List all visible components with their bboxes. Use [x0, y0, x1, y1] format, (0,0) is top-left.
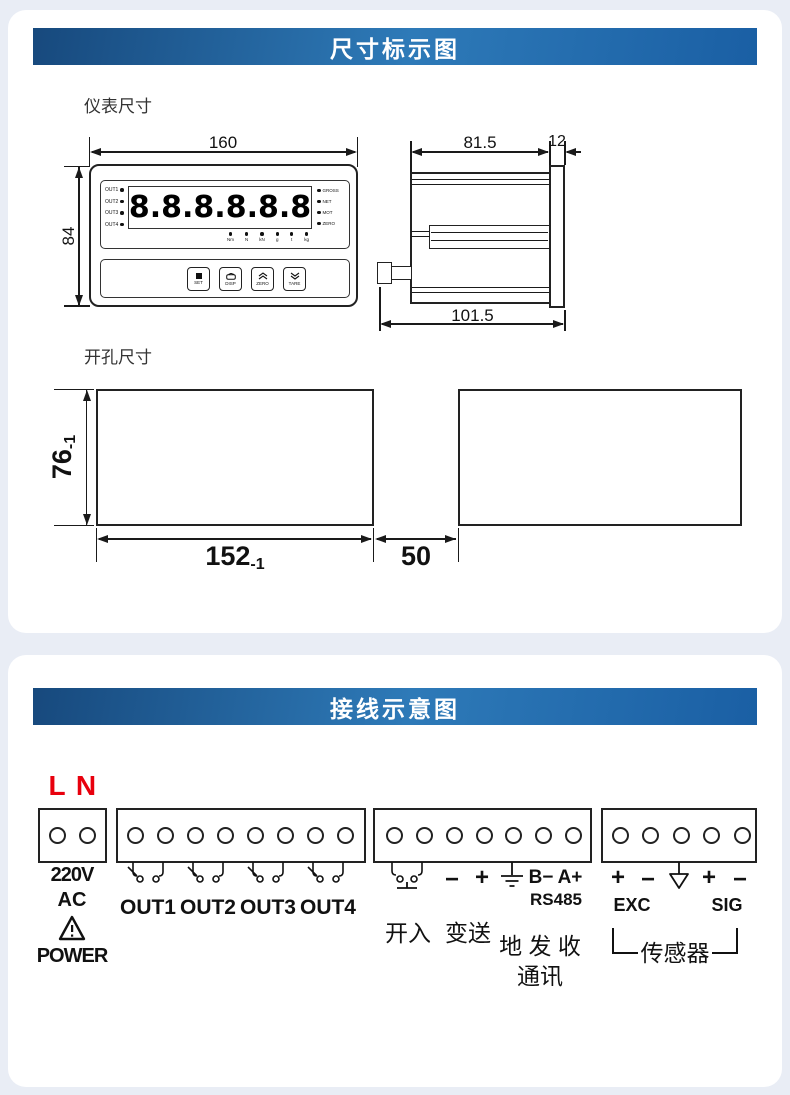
terminal-hole — [505, 827, 522, 844]
cutout-gap-dim: 50 — [394, 541, 438, 572]
bracket-left — [612, 928, 638, 954]
out1-label: OUT1 — [118, 896, 178, 920]
comm-label: 通讯 — [508, 957, 572, 991]
dim-value: 81.5 — [445, 133, 515, 153]
voltage-label: 220V — [34, 864, 110, 887]
mounting-clamp — [429, 225, 550, 249]
terminal-hole — [612, 827, 629, 844]
rs485-label: RS485 — [521, 890, 591, 910]
dim-value: 152 — [205, 541, 250, 571]
bracket-right — [712, 928, 738, 954]
terminal-hole — [734, 827, 751, 844]
cutout-rect-right — [458, 389, 742, 526]
terminal-hole — [673, 827, 690, 844]
ac-label: AC — [34, 889, 110, 912]
relay-contact-icon — [244, 862, 292, 894]
unit-g: g — [276, 237, 279, 242]
terminal-hole — [703, 827, 720, 844]
led-dot — [245, 232, 249, 236]
out3-label: OUT3 — [238, 896, 298, 920]
disp-button-label: DISP — [225, 281, 236, 286]
unit-kn: kN — [259, 237, 265, 242]
sig-minus: − — [725, 866, 755, 894]
disp-button: DISP — [219, 267, 242, 291]
terminal-hole — [79, 827, 96, 844]
line-n-label: N — [72, 770, 100, 802]
tare-button-label: TARE — [289, 281, 301, 286]
arrowhead — [361, 535, 372, 543]
terminal-hole — [127, 827, 144, 844]
arrowhead — [97, 535, 108, 543]
out2-label: OUT2 — [105, 199, 118, 205]
rear-connector-neck — [391, 266, 412, 280]
out1-label: OUT1 — [105, 187, 118, 193]
led-dot — [290, 232, 294, 236]
out-indicator-column: OUT1 OUT2 OUT3 OUT4 — [105, 187, 124, 228]
ext-line — [410, 141, 412, 172]
line — [431, 240, 548, 241]
chevron-double-down-icon — [290, 272, 300, 280]
terminal-hole — [535, 827, 552, 844]
rs485-a-label: A+ — [550, 867, 590, 889]
gnd-tx-rx-label: 地 发 收 — [494, 927, 586, 961]
io-terminal-block — [373, 808, 592, 863]
dim-tolerance: -1 — [250, 556, 264, 573]
warning-icon — [58, 915, 86, 942]
relay-contact-icon — [124, 862, 172, 894]
unit-kg: kg — [304, 237, 309, 242]
transmit-plus: + — [467, 864, 497, 892]
relay-contact-icon — [304, 862, 352, 894]
out4-label: OUT4 — [298, 896, 358, 920]
dim-value: 160 — [193, 133, 253, 153]
key-row: SET DISP ZERO TARE — [187, 267, 306, 291]
key-panel: SET DISP ZERO TARE — [100, 259, 350, 298]
sensor-terminal-block — [601, 808, 757, 863]
arrowhead — [75, 295, 83, 306]
switch-input-icon — [378, 862, 436, 900]
arrowhead — [90, 148, 101, 156]
gross-label: GROSS — [323, 188, 339, 193]
dim-line — [86, 390, 88, 525]
terminal-hole — [157, 827, 174, 844]
cutout-size-label: 开孔尺寸 — [84, 343, 152, 368]
dim-value: 12 — [548, 133, 566, 151]
wiring-section-title: 接线示意图 — [330, 690, 460, 724]
line — [412, 292, 549, 293]
line — [411, 236, 429, 237]
exc-plus: + — [603, 864, 633, 892]
cutout-width-dim: 152-1 — [180, 541, 290, 572]
ext-line — [564, 310, 566, 331]
dim-value: 84 — [59, 216, 79, 256]
exc-minus: − — [633, 866, 663, 894]
terminal-hole — [307, 827, 324, 844]
arrowhead — [380, 320, 391, 328]
arrowhead — [75, 167, 83, 178]
terminal-hole — [187, 827, 204, 844]
chevron-double-up-icon — [258, 272, 268, 280]
arrowhead — [375, 535, 386, 543]
power-terminal-block — [38, 808, 107, 863]
led-dot — [317, 211, 321, 215]
relay-terminal-block — [116, 808, 366, 863]
line — [411, 231, 429, 232]
page: 尺寸标示图 仪表尺寸 160 84 OUT1 OUT2 OUT3 OUT4 — [0, 0, 790, 1095]
dim-value: 101.5 — [440, 306, 505, 326]
led-dot — [276, 232, 280, 236]
status-indicator-column: GROSS NET MOT ZERO — [317, 188, 339, 226]
display-panel: OUT1 OUT2 OUT3 OUT4 8.8.8.8.8.8 GROSS NE… — [100, 180, 350, 249]
arrowhead — [565, 148, 576, 156]
ext-line — [96, 528, 98, 562]
ext-line — [373, 528, 375, 562]
led-dot — [120, 200, 124, 204]
zero-label: ZERO — [323, 221, 336, 226]
transmit-minus: − — [437, 866, 467, 894]
transmit-label: 变送 — [438, 914, 498, 948]
unit-indicator-row: Nm N kN g t kg — [227, 232, 309, 242]
mot-label: MOT — [323, 210, 333, 215]
arrowhead — [346, 148, 357, 156]
switch-input-label: 开入 — [378, 914, 438, 948]
led-dot — [317, 222, 321, 226]
line — [412, 179, 549, 180]
tare-button: TARE — [283, 267, 306, 291]
led-dot — [120, 223, 124, 227]
terminal-hole — [446, 827, 463, 844]
set-button-label: SET — [194, 280, 203, 285]
rear-connector — [377, 262, 392, 284]
terminal-hole — [476, 827, 493, 844]
led-dot — [120, 211, 124, 215]
terminal-hole — [642, 827, 659, 844]
sensor-label: 传感器 — [638, 934, 712, 968]
zero-button: ZERO — [251, 267, 274, 291]
dimension-section-title: 尺寸标示图 — [330, 30, 460, 64]
out3-label: OUT3 — [105, 210, 118, 216]
terminal-hole — [247, 827, 264, 844]
cutout-rect-left — [96, 389, 374, 526]
out2-label: OUT2 — [178, 896, 238, 920]
wiring-section-header: 接线示意图 — [33, 688, 757, 725]
line — [412, 184, 549, 185]
line — [412, 287, 549, 288]
led-dot — [305, 232, 309, 236]
dim-line — [99, 538, 371, 540]
dimension-section-header: 尺寸标示图 — [33, 28, 757, 65]
terminal-hole — [565, 827, 582, 844]
display-icon — [226, 273, 236, 280]
line — [431, 232, 548, 233]
set-button: SET — [187, 267, 210, 291]
unit-t: t — [291, 237, 292, 242]
ext-line — [458, 528, 460, 562]
line-l-label: L — [43, 770, 71, 802]
display-value: 8.8.8.8.8.8 — [129, 190, 311, 225]
sig-plus: + — [694, 864, 724, 892]
dim-tolerance: -1 — [62, 435, 79, 449]
led-dot — [260, 232, 264, 236]
front-bezel-side — [549, 165, 565, 308]
arrowhead — [445, 535, 456, 543]
sig-label: SIG — [701, 895, 753, 916]
power-label: POWER — [28, 945, 116, 968]
led-dot — [317, 200, 321, 204]
net-label: NET — [323, 199, 332, 204]
meter-front-panel: OUT1 OUT2 OUT3 OUT4 8.8.8.8.8.8 GROSS NE… — [89, 164, 358, 307]
led-dot — [120, 188, 124, 192]
shield-icon — [668, 862, 690, 892]
exc-label: EXC — [606, 895, 658, 916]
seven-segment-display: 8.8.8.8.8.8 — [128, 186, 312, 229]
cutout-height-dim: 76-1 — [47, 422, 77, 492]
terminal-hole — [416, 827, 433, 844]
terminal-hole — [217, 827, 234, 844]
unit-n: N — [245, 237, 248, 242]
relay-contact-icon — [184, 862, 232, 894]
arrowhead — [553, 320, 564, 328]
square-icon — [196, 273, 202, 279]
arrowhead — [83, 390, 91, 401]
terminal-hole — [49, 827, 66, 844]
arrowhead — [411, 148, 422, 156]
meter-size-label: 仪表尺寸 — [84, 92, 152, 117]
terminal-hole — [337, 827, 354, 844]
dim-value: 76 — [47, 449, 77, 479]
terminal-hole — [277, 827, 294, 844]
zero-button-label: ZERO — [256, 281, 269, 286]
terminal-hole — [386, 827, 403, 844]
unit-nm: Nm — [227, 237, 234, 242]
led-dot — [229, 232, 233, 236]
arrowhead — [83, 514, 91, 525]
led-dot — [317, 189, 321, 193]
out4-label: OUT4 — [105, 222, 118, 228]
